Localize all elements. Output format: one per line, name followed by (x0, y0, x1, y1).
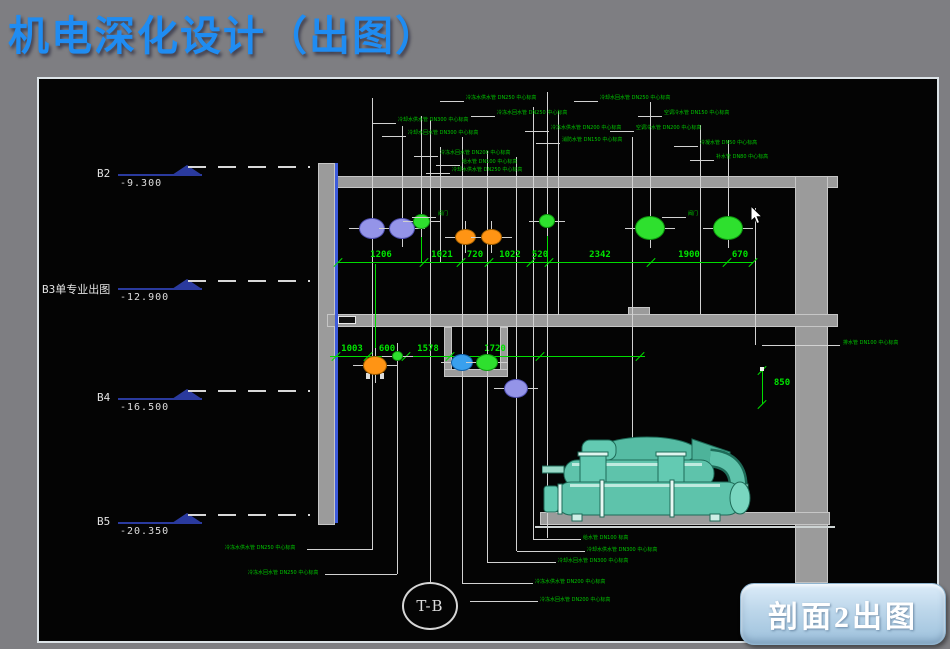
leader-line-horizontal (470, 601, 538, 602)
leader-line-vertical (558, 111, 559, 315)
level-name: B3单专业出图 (42, 281, 110, 297)
pipe-section (635, 216, 665, 240)
annotation-leader (662, 217, 686, 218)
pipe-section (539, 214, 555, 228)
level-name: B4 (97, 391, 110, 404)
annotation-leader (471, 116, 495, 117)
cad-world: B2-9.300B3单专业出图-12.900B4-16.500B5-20.350… (0, 0, 950, 649)
dimension-value: 850 (762, 378, 802, 388)
level-elevation: -16.500 (120, 402, 169, 413)
dimension-value: 520 (520, 250, 560, 260)
level-dashed-line (188, 280, 310, 282)
level-name: B2 (97, 167, 110, 180)
leader-line-horizontal (517, 551, 585, 552)
leader-dot (760, 367, 764, 371)
wall-highlight-line (335, 163, 338, 523)
annotation-leader (440, 101, 464, 102)
annotation-leader (372, 123, 396, 124)
annotation-leader (638, 116, 662, 117)
pipe-section (713, 216, 743, 240)
pipe-section (363, 356, 387, 375)
leader-line-horizontal (533, 539, 581, 540)
dimension-extension-line (421, 232, 422, 262)
pipe-annotation-label: 冷冻水回水管 DN250 中心标高 (497, 110, 567, 116)
pipe-annotation-label: 阀门 (438, 211, 448, 217)
annotation-leader (426, 173, 450, 174)
level-dashed-line (188, 166, 310, 168)
annotation-leader (574, 101, 598, 102)
leader-line-vertical (755, 208, 756, 345)
wall-section (327, 314, 838, 327)
leader-line-vertical (700, 125, 701, 314)
leader-line-horizontal (487, 562, 556, 563)
leader-line-vertical (397, 362, 398, 574)
pipe-annotation-label: 冷却水回水管 DN300 中心标高 (558, 558, 628, 564)
annotation-leader (674, 146, 698, 147)
wall-section (335, 176, 838, 188)
leader-line-vertical (728, 140, 729, 217)
dimension-value: 1578 (408, 344, 448, 354)
annotation-leader (690, 160, 714, 161)
pipe-annotation-label: 冷却水供水管 DN300 中心标高 (587, 547, 657, 553)
dimension-value: 1206 (361, 250, 401, 260)
leader-line-horizontal (307, 549, 373, 550)
wall-section (444, 369, 508, 377)
level-name: B5 (97, 515, 110, 528)
level-elevation: -12.900 (120, 292, 169, 303)
pipe-annotation-label: 冷冻水供水管 DN250 中心标高 (225, 545, 295, 551)
chiller-unit-drawing (542, 426, 764, 526)
pipe-annotation-label: 阀门 (688, 211, 698, 217)
dimension-value: 720 (455, 250, 495, 260)
pipe-section (481, 229, 502, 245)
dimension-line (338, 262, 753, 263)
pipe-annotation-label: 冷冻水供水管 DN200 中心标高 (535, 579, 605, 585)
level-dashed-line (188, 390, 310, 392)
leader-line-horizontal (762, 345, 840, 346)
pipe-annotation-label: 给水管 DN100 中心标高 (462, 159, 517, 165)
leader-line-vertical (533, 107, 534, 539)
dimension-value: 2342 (580, 250, 620, 260)
pipe-annotation-label: 空调冷水管 DN150 中心标高 (664, 110, 729, 116)
leader-line-vertical (650, 102, 651, 217)
leader-line-vertical (516, 157, 517, 551)
dimension-value: 1900 (669, 250, 709, 260)
pipe-annotation-label: 消防水管 DN150 中心标高 (562, 137, 622, 143)
pipe-annotation-label: 冷凝水管 DN50 中心标高 (700, 140, 757, 146)
dimension-extension-line (375, 264, 376, 354)
annotation-leader (412, 217, 436, 218)
leader-line-horizontal (325, 574, 397, 575)
leader-line-horizontal (462, 583, 533, 584)
pipe-annotation-label: 冷冻水供水管 DN250 中心标高 (466, 95, 536, 101)
pipe-annotation-label: 补水管 DN80 中心标高 (716, 154, 768, 160)
pipe-annotation-label: 冷却水供水管 DN300 中心标高 (398, 117, 468, 123)
annotation-leader (382, 136, 406, 137)
section2-output-button[interactable]: 剖面2出图 (740, 583, 946, 645)
pipe-section (504, 379, 528, 398)
pipe-annotation-label: 冷却水回水管 DN250 中心标高 (600, 95, 670, 101)
annotation-leader (536, 143, 560, 144)
pipe-section (413, 214, 430, 229)
annotation-leader (436, 165, 460, 166)
slab-edge-line (535, 526, 835, 528)
pipe-annotation-label: 冷却水回水管 DN300 中心标高 (408, 130, 478, 136)
slide: 机电深化设计（出图） B2-9.300B3单专业出图-12.900B4-16.5… (0, 0, 950, 649)
dimension-value: 1003 (332, 344, 372, 354)
pipe-annotation-label: 空调冷水管 DN200 中心标高 (636, 125, 701, 131)
cad-viewport[interactable]: B2-9.300B3单专业出图-12.900B4-16.500B5-20.350… (37, 77, 939, 643)
pipe-annotation-label: 冷冻水回水管 DN200 中心标高 (440, 150, 510, 156)
annotation-leader (525, 131, 549, 132)
mouse-cursor-icon (750, 205, 764, 225)
pipe-annotation-label: 排水管 DN100 中心标高 (843, 340, 898, 346)
level-elevation: -20.350 (120, 526, 169, 537)
grid-axis-bubble: T-B (402, 582, 458, 630)
annotation-leader (414, 156, 438, 157)
pipe-section (392, 351, 403, 361)
dimension-value: 670 (720, 250, 760, 260)
pipe-annotation-label: 冷却水供水管 DN250 中心标高 (452, 167, 522, 173)
dimension-value: 1720 (475, 344, 515, 354)
pipe-annotation-label: 冷冻水回水管 DN200 中心标高 (540, 597, 610, 603)
grid-axis-label: T-B (416, 597, 443, 615)
annotation-leader (610, 131, 634, 132)
pipe-annotation-label: 给水管 DN100 标高 (583, 535, 628, 541)
level-elevation: -9.300 (120, 178, 162, 189)
level-dashed-line (188, 514, 310, 516)
leader-line-vertical (372, 98, 373, 549)
section2-output-label: 剖面2出图 (768, 592, 918, 636)
pipe-section (476, 354, 498, 371)
pipe-annotation-label: 冷冻水回水管 DN250 中心标高 (248, 570, 318, 576)
embedded-plate (338, 316, 356, 324)
